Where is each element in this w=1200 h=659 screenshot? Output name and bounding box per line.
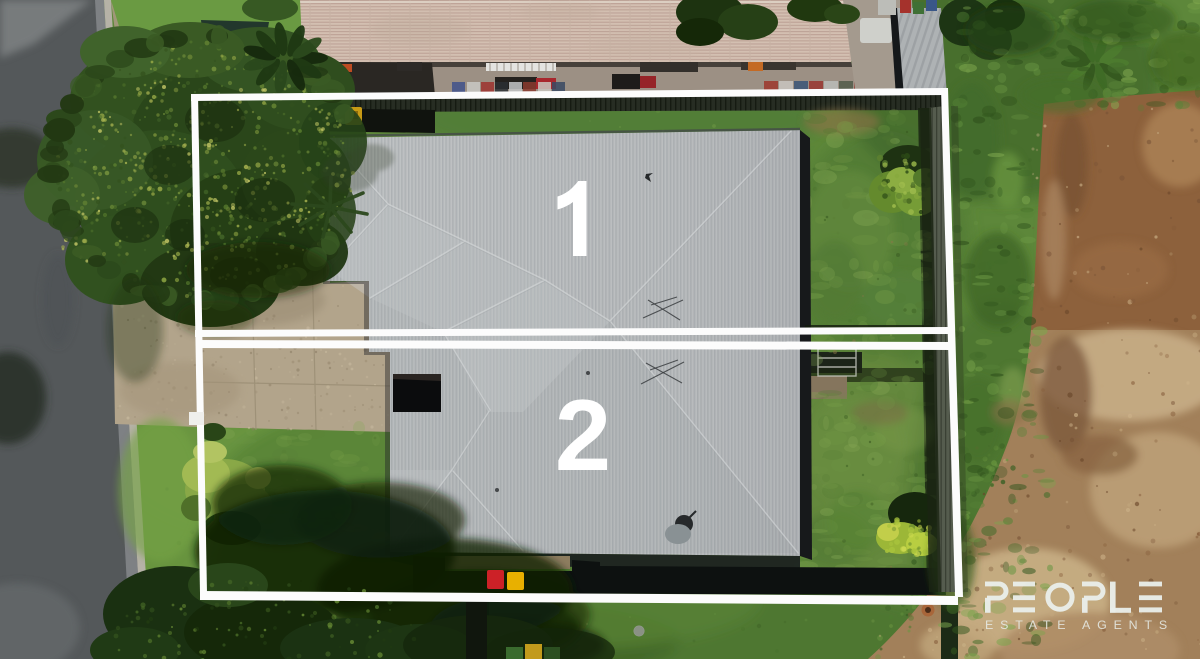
svg-text:ESTATE AGENTS: ESTATE AGENTS: [985, 618, 1174, 632]
svg-text:2: 2: [555, 380, 611, 492]
